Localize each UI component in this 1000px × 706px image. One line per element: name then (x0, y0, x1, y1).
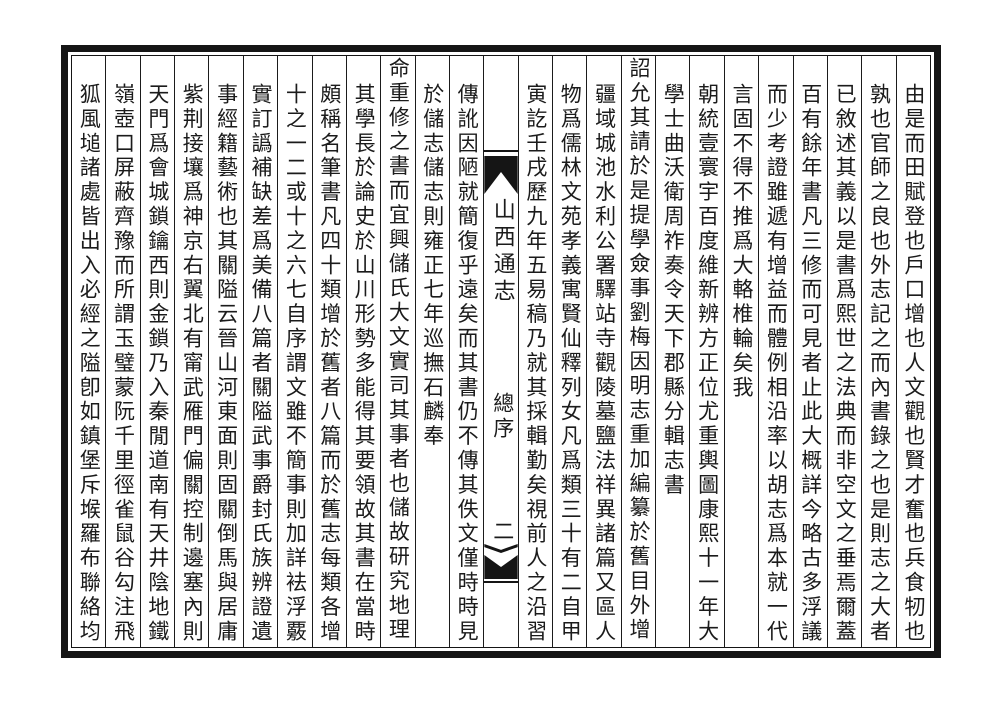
column-text: 朝統壹寰宇百度維新辨方正位尤重輿圖康熙十一年大 (691, 56, 724, 644)
text-column-7: 朝統壹寰宇百度維新辨方正位尤重輿圖康熙十一年大 (689, 56, 723, 647)
column-text: 學士曲沃衛周祚奏令天下郡縣分輯志書 (656, 56, 689, 498)
text-column-15-edict: 命重修之書而宜興儲氏大文實司其事者也儲故研究地理 (380, 56, 414, 647)
column-text: 天門爲會城鎖鑰西則金鎖乃入秦閒道南有天井陰地鐵 (141, 56, 174, 644)
column-text: 其學長於論史於山川形勢多能得其要領故其書在當時 (347, 56, 380, 644)
text-column-20: 事經籍藝術也其關隘云晉山河東面則固關倒馬與居庸 (208, 56, 242, 647)
text-column-4: 百有餘年書凡三修而可見者止此大概詳今略古多浮議 (793, 56, 827, 647)
text-column-18: 十之一二或十之六七自序謂文雖不簡事則加詳袪浮覈 (277, 56, 311, 647)
text-column-24: 狐風塠諸處皆出入必經之隘卽如鎮堡斥堠羅布聯絡均 (72, 56, 105, 647)
column-text: 孰也官師之良也外志記之而內書錄之也是則志之大者 (862, 56, 895, 644)
column-text: 於儲志儲志則雍正七年巡撫石麟奉 (416, 56, 449, 449)
column-text: 十之一二或十之六七自序謂文雖不簡事則加詳袪浮覈 (278, 56, 311, 644)
text-column-21: 紫荆接壤爲神京右翼北有甯武雁門偏關控制邊塞內則 (174, 56, 208, 647)
lower-chevron-icon (484, 544, 517, 553)
lower-rule (484, 581, 517, 583)
column-text: 嶺壺口屏蔽齊豫而所謂玉璧蒙阮千里徑雀鼠谷勾注飛 (107, 56, 140, 644)
column-text: 狐風塠諸處皆出入必經之隘卽如鎮堡斥堠羅布聯絡均 (72, 56, 105, 644)
text-column-12: 寅訖壬戌歷九年五易稿乃就其採輯勤矣視前人之沿習 (518, 56, 552, 647)
folding-column: 山西通志 總序 二 (483, 56, 517, 647)
text-column-11: 物爲儒林文苑孝義寓賢仙釋列女凡爲類三十有二自甲 (552, 56, 586, 647)
column-text: 詔允其請於是提學僉事劉梅因明志重加編纂於舊目外增 (622, 56, 655, 643)
text-column-1: 由是而田賦登也戶口增也人文觀也賢才奮也兵食牣也 (896, 56, 930, 647)
page-number: 二 (484, 520, 517, 541)
column-text: 已敘述其義以是書爲熙世之法典而非空文之垂焉爾蓋 (828, 56, 861, 644)
text-column-19: 實訂譌補缺差爲美備八篇者關隘武事爵封氏族辨證遺 (243, 56, 277, 647)
column-text: 寅訖壬戌歷九年五易稿乃就其採輯勤矣視前人之沿習 (519, 56, 552, 644)
text-column-17: 頗稱名筆書凡四十類增於舊者八篇而於舊志每類各增 (312, 56, 346, 647)
text-column-10: 疆域城池水利公署驛站寺觀陵墓鹽法祥異諸篇又區人 (586, 56, 620, 647)
column-text: 物爲儒林文苑孝義寓賢仙釋列女凡爲類三十有二自甲 (553, 56, 586, 644)
page-frame-inner: 由是而田賦登也戶口增也人文觀也賢才奮也兵食牣也 孰也官師之良也外志記之而內書錄之… (71, 55, 931, 648)
column-text: 紫荆接壤爲神京右翼北有甯武雁門偏關控制邊塞內則 (175, 56, 208, 644)
text-column-23: 嶺壺口屏蔽齊豫而所謂玉璧蒙阮千里徑雀鼠谷勾注飛 (105, 56, 139, 647)
text-column-2: 孰也官師之良也外志記之而內書錄之也是則志之大者 (861, 56, 895, 647)
text-column-5: 而少考證雖遞有增益而體例相沿率以胡志爲本就一代 (758, 56, 792, 647)
text-column-16: 其學長於論史於山川形勢多能得其要領故其書在當時 (346, 56, 380, 647)
text-column-3: 已敘述其義以是書爲熙世之法典而非空文之垂焉爾蓋 (827, 56, 861, 647)
column-text: 命重修之書而宜興儲氏大文實司其事者也儲故研究地理 (381, 56, 414, 643)
column-text: 傳訛因陋就簡復乎遠矣而其書仍不傳其佚文僅時時見 (450, 56, 483, 644)
text-column-22: 天門爲會城鎖鑰西則金鎖乃入秦閒道南有天井陰地鐵 (140, 56, 174, 647)
column-text: 實訂譌補缺差爲美備八篇者關隘武事爵封氏族辨證遺 (244, 56, 277, 644)
page-frame-outer: 由是而田賦登也戶口增也人文觀也賢才奮也兵食牣也 孰也官師之良也外志記之而內書錄之… (61, 45, 941, 658)
upper-rule (484, 150, 517, 152)
text-columns-container: 由是而田賦登也戶口增也人文觀也賢才奮也兵食牣也 孰也官師之良也外志記之而內書錄之… (72, 56, 930, 647)
column-text: 事經籍藝術也其關隘云晉山河東面則固關倒馬與居庸 (210, 56, 243, 644)
column-text: 疆域城池水利公署驛站寺觀陵墓鹽法祥異諸篇又區人 (588, 56, 621, 644)
column-text: 頗稱名筆書凡四十類增於舊者八篇而於舊志每類各增 (313, 56, 346, 644)
book-title: 山西通志 (484, 198, 517, 306)
column-text: 百有餘年書凡三修而可見者止此大概詳今略古多浮議 (794, 56, 827, 644)
text-column-8: 學士曲沃衛周祚奏令天下郡縣分輯志書 (655, 56, 689, 647)
section-label: 總序 (484, 392, 517, 442)
upper-fishtail-icon (484, 156, 517, 194)
text-column-9-edict: 詔允其請於是提學僉事劉梅因明志重加編纂於舊目外增 (621, 56, 655, 647)
text-column-6: 言固不得不推爲大輅椎輪矣我 (724, 56, 758, 647)
text-column-13: 傳訛因陋就簡復乎遠矣而其書仍不傳其佚文僅時時見 (449, 56, 483, 647)
column-text: 而少考證雖遞有增益而體例相沿率以胡志爲本就一代 (759, 56, 792, 644)
text-column-14: 於儲志儲志則雍正七年巡撫石麟奉 (415, 56, 449, 647)
column-text: 由是而田賦登也戶口增也人文觀也賢才奮也兵食牣也 (897, 56, 930, 644)
lower-fishtail-icon (484, 555, 517, 579)
scanned-book-page: 由是而田賦登也戶口增也人文觀也賢才奮也兵食牣也 孰也官師之良也外志記之而內書錄之… (0, 0, 1000, 706)
column-text: 言固不得不推爲大輅椎輪矣我 (725, 56, 758, 400)
